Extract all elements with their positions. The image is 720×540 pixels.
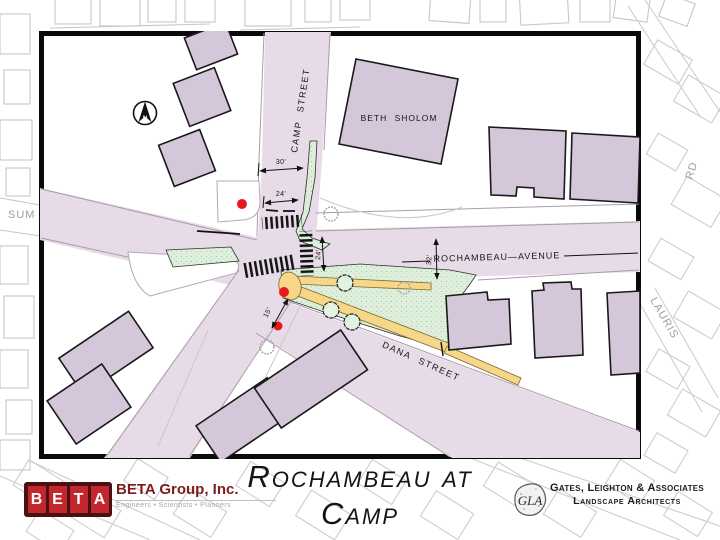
plan-title-line1: Rochambeau at <box>150 458 570 495</box>
gla-logo: GLA <box>512 482 548 518</box>
dim-east-crosswalk: 24' <box>315 249 323 260</box>
gla-monogram: GLA <box>518 493 543 508</box>
north-arrow-n: N <box>143 116 147 122</box>
plan-title: Rochambeau at Camp <box>150 458 570 532</box>
context-label-summit: SUM <box>8 209 35 221</box>
context-label-rd: RD <box>683 160 700 181</box>
building-beth-sholom <box>339 59 458 164</box>
gla-block: GLA Gates, Leighton & Associates Landsca… <box>512 482 714 518</box>
gla-company-name: Gates, Leighton & Associates <box>550 482 704 495</box>
beta-letter-t: T <box>70 486 88 513</box>
beta-letter-a: A <box>91 486 109 513</box>
north-arrow: N <box>134 102 157 125</box>
dim-camp-row: 30' <box>276 159 286 166</box>
beta-letter-e: E <box>49 486 67 513</box>
plan-title-line2: Camp <box>150 495 570 532</box>
gla-subtitle: Landscape Architects <box>550 495 704 507</box>
label-beth-sholom: BETH SHOLOM <box>361 113 438 123</box>
beta-logo: B E T A <box>24 482 112 517</box>
beta-letter-b: B <box>28 486 46 513</box>
dim-rochambeau-width: 32' <box>426 254 434 265</box>
dim-camp-pavement: 24' <box>276 191 286 198</box>
